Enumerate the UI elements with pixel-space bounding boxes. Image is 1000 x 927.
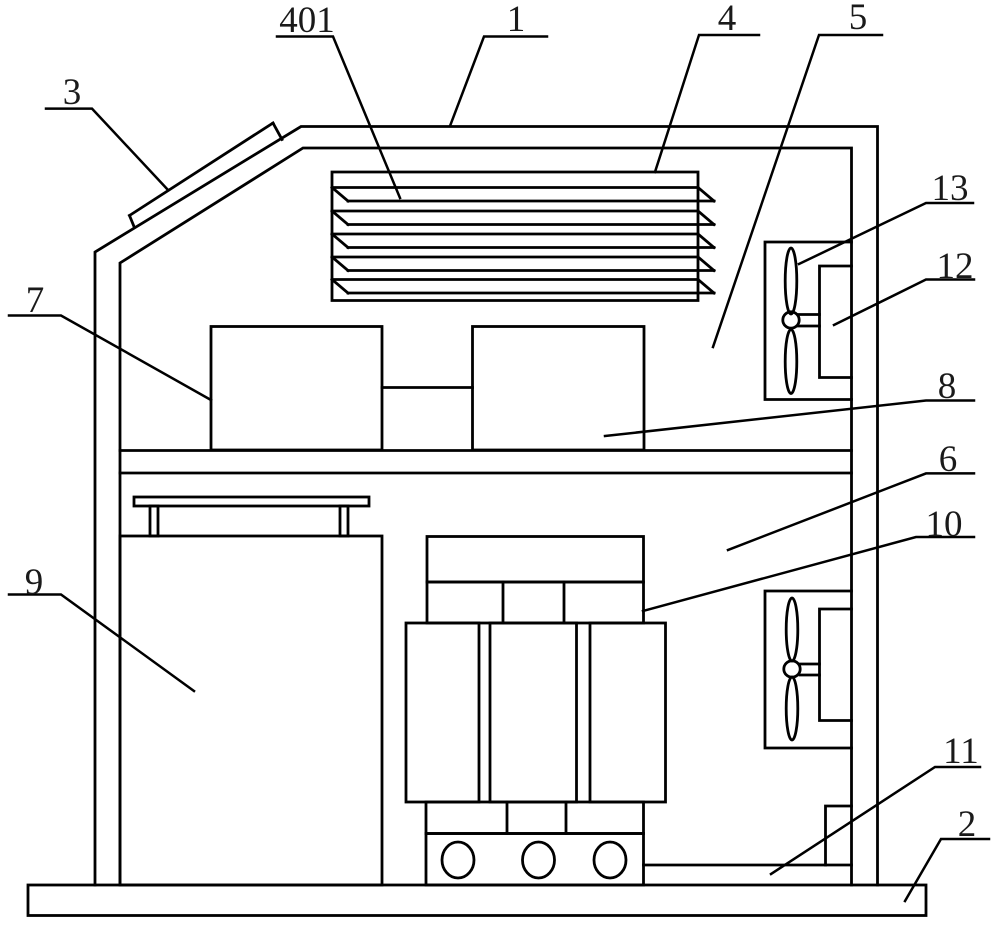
svg-text:6: 6 — [939, 439, 958, 480]
svg-text:9: 9 — [25, 562, 44, 603]
svg-text:8: 8 — [938, 366, 957, 407]
svg-text:13: 13 — [932, 168, 969, 209]
svg-text:401: 401 — [279, 0, 335, 41]
svg-text:4: 4 — [718, 0, 737, 39]
svg-text:11: 11 — [943, 731, 979, 772]
svg-text:1: 1 — [507, 0, 526, 40]
svg-text:2: 2 — [958, 804, 977, 845]
svg-text:7: 7 — [26, 280, 45, 321]
svg-text:12: 12 — [937, 246, 974, 287]
svg-text:3: 3 — [63, 72, 82, 113]
svg-text:10: 10 — [926, 504, 963, 545]
svg-text:5: 5 — [849, 0, 868, 38]
